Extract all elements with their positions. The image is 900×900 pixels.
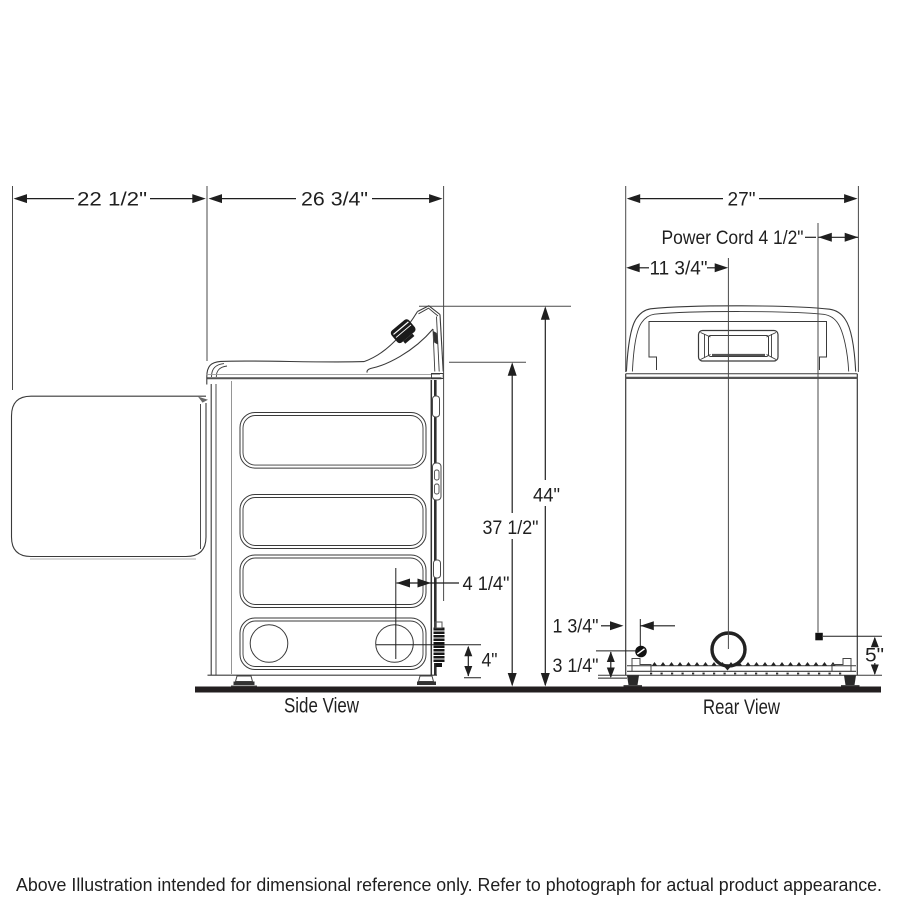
svg-text:Power Cord 4 1/2": Power Cord 4 1/2" <box>662 227 804 249</box>
svg-text:4": 4" <box>482 650 498 672</box>
svg-text:4 1/4": 4 1/4" <box>463 573 510 595</box>
svg-text:Above Illustration intended fo: Above Illustration intended for dimensio… <box>16 875 882 895</box>
svg-text:3 1/4": 3 1/4" <box>553 655 599 677</box>
svg-text:22 1/2": 22 1/2" <box>77 189 147 211</box>
svg-text:27": 27" <box>728 189 756 211</box>
svg-text:11 3/4": 11 3/4" <box>650 258 708 280</box>
svg-text:1 3/4": 1 3/4" <box>553 616 599 638</box>
svg-text:37 1/2": 37 1/2" <box>483 517 539 539</box>
svg-text:44": 44" <box>533 485 560 507</box>
svg-text:Side View: Side View <box>284 695 360 718</box>
svg-text:26 3/4": 26 3/4" <box>301 189 368 211</box>
svg-text:Rear View: Rear View <box>703 696 781 719</box>
svg-text:5": 5" <box>865 645 884 667</box>
